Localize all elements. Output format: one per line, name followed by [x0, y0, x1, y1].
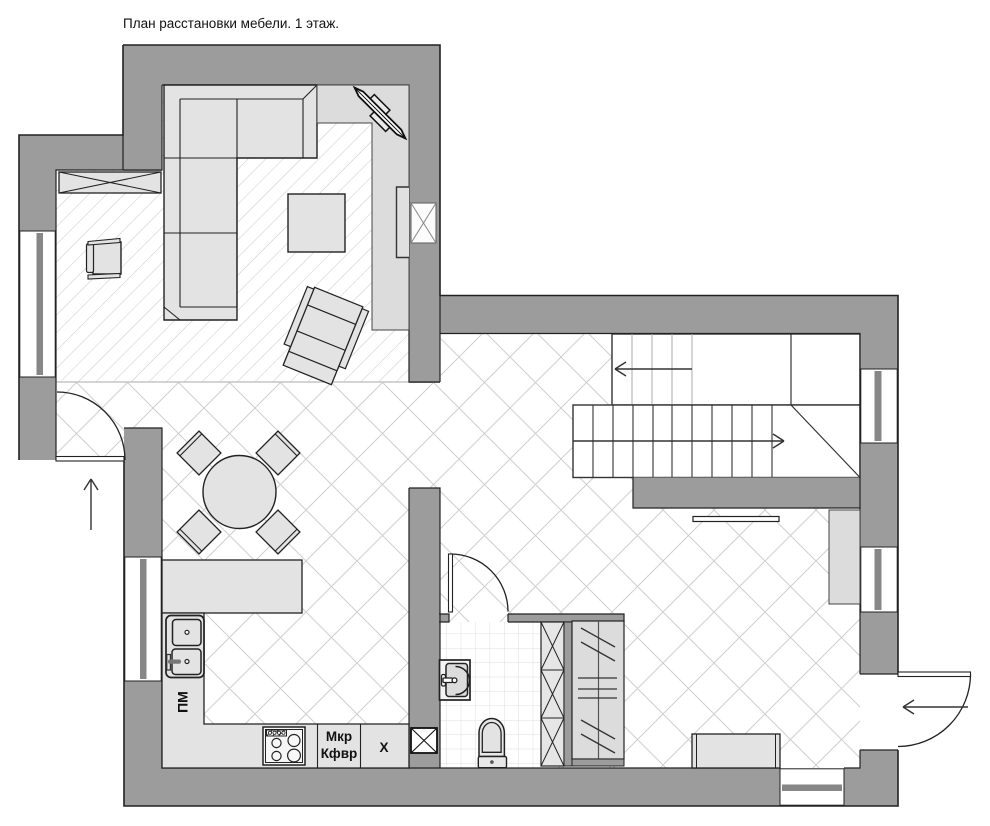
- svg-text:Мкр: Мкр: [326, 729, 352, 744]
- svg-text:X: X: [379, 740, 388, 755]
- svg-text:Кфвр: Кфвр: [321, 746, 358, 761]
- svg-text:План расстановки мебели. 1 эта: План расстановки мебели. 1 этаж.: [123, 16, 339, 31]
- svg-text:ПМ: ПМ: [175, 691, 191, 713]
